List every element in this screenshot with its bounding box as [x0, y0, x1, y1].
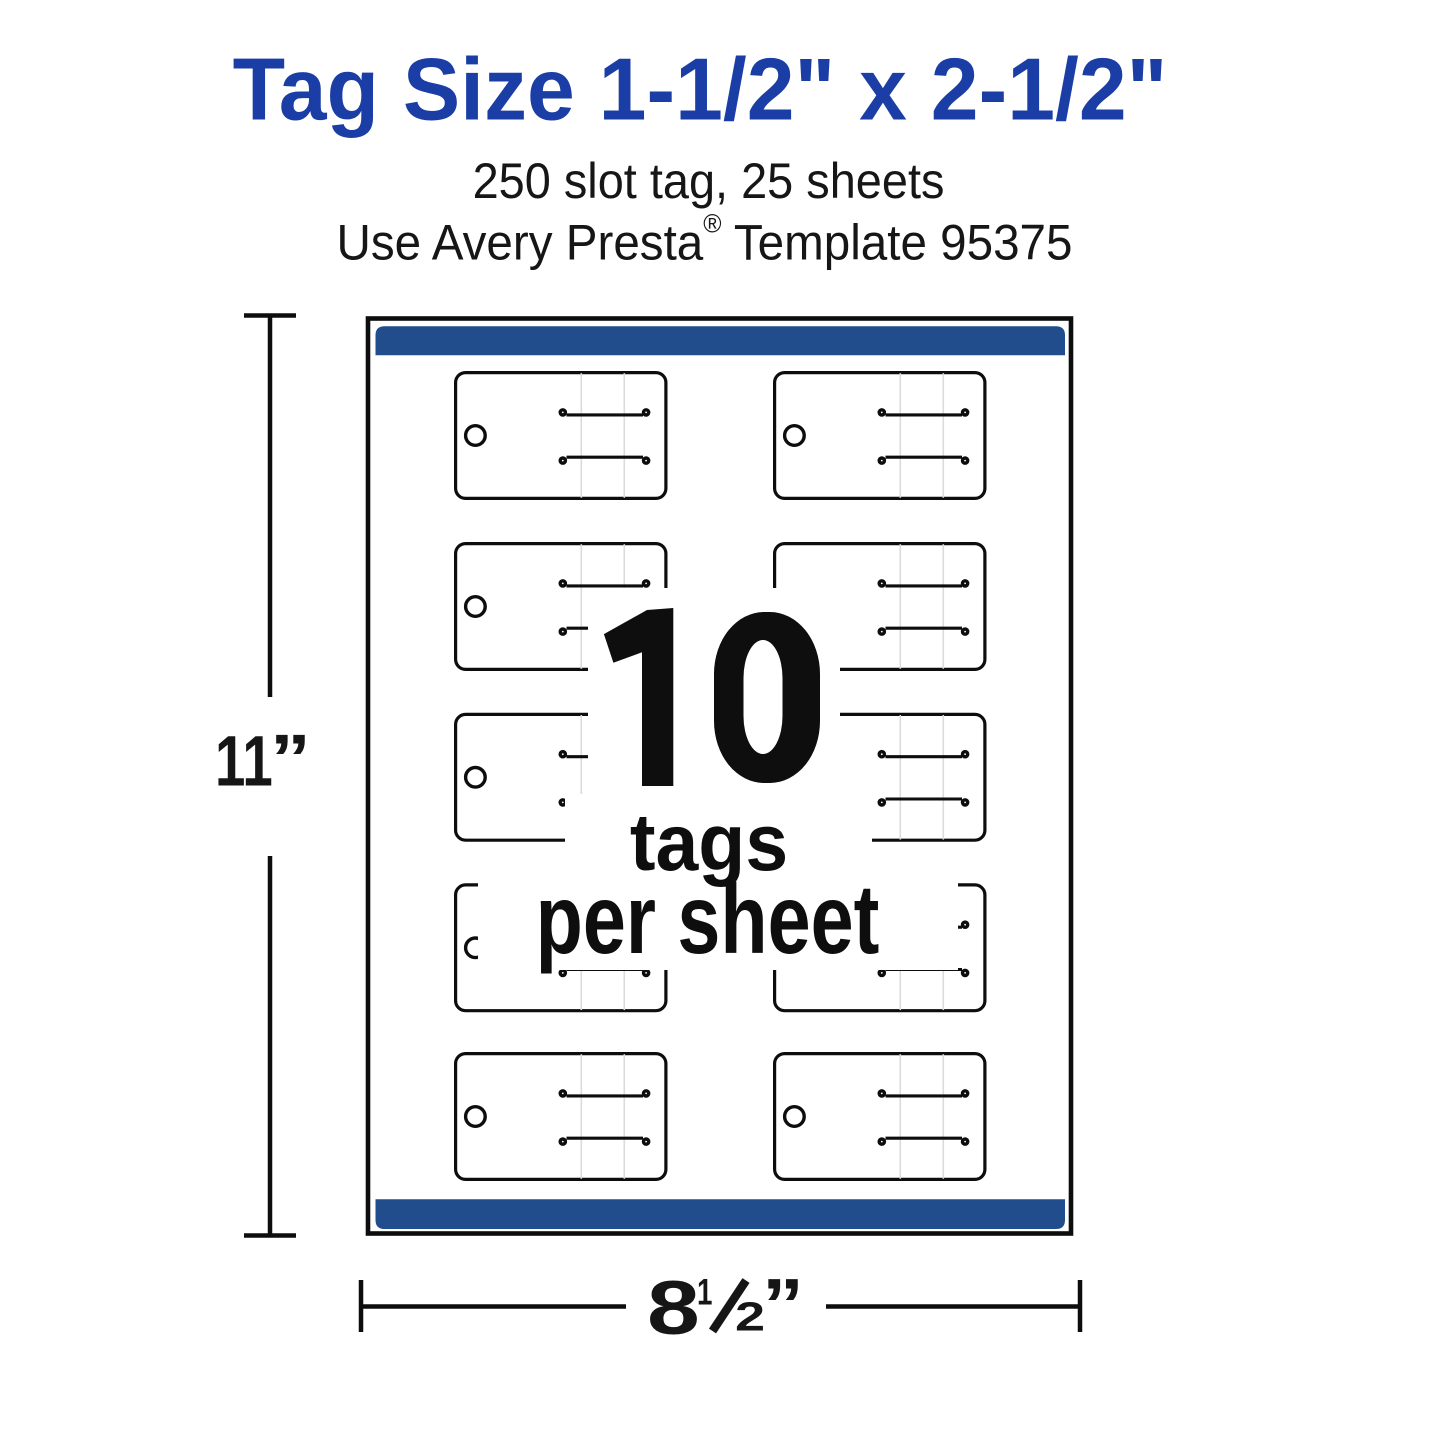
- svg-text:Tag Size 1-1/2" x 2-1/2": Tag Size 1-1/2" x 2-1/2": [233, 40, 1168, 138]
- svg-text:”: ”: [270, 720, 311, 796]
- svg-text:8: 8: [647, 1266, 700, 1351]
- svg-text:”: ”: [762, 1264, 804, 1346]
- svg-text:per sheet: per sheet: [536, 864, 880, 974]
- svg-text:11: 11: [215, 723, 273, 801]
- svg-text:1: 1: [697, 1271, 712, 1313]
- svg-text:2: 2: [735, 1295, 765, 1340]
- svg-text:250 slot tag, 25 sheets: 250 slot tag, 25 sheets: [473, 154, 945, 210]
